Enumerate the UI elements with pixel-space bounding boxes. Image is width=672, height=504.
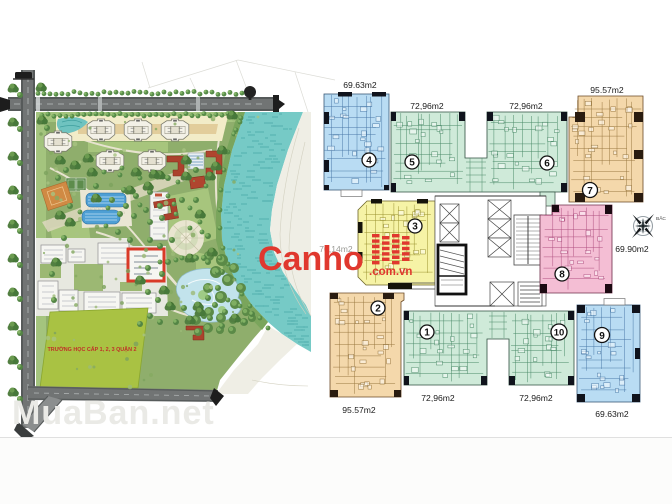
svg-text:8: 8 — [559, 270, 565, 281]
svg-text:Canho: Canho — [258, 240, 364, 278]
svg-text:TRƯỜNG HỌC CẤP 1, 2, 3 QUẬN 2: TRƯỜNG HỌC CẤP 1, 2, 3 QUẬN 2 — [48, 345, 137, 353]
svg-text:7: 7 — [587, 186, 593, 197]
svg-text:1: 1 — [424, 328, 430, 339]
svg-text:69.90m2: 69.90m2 — [615, 244, 649, 254]
svg-text:MuaBan.net: MuaBan.net — [12, 394, 215, 432]
svg-text:72,96m2: 72,96m2 — [519, 393, 553, 403]
svg-text:95.57m2: 95.57m2 — [590, 85, 624, 95]
svg-text:5: 5 — [409, 158, 415, 169]
svg-text:72,96m2: 72,96m2 — [509, 101, 543, 111]
svg-text:10: 10 — [554, 328, 565, 339]
svg-text:69.63m2: 69.63m2 — [343, 80, 377, 90]
svg-text:2: 2 — [375, 304, 381, 315]
svg-text:9: 9 — [599, 331, 605, 342]
svg-text:4: 4 — [366, 156, 372, 167]
svg-text:BẮC: BẮC — [656, 214, 666, 222]
svg-text:6: 6 — [544, 159, 550, 170]
svg-text:72,96m2: 72,96m2 — [421, 393, 455, 403]
svg-text:95.57m2: 95.57m2 — [342, 405, 376, 415]
svg-text:69.63m2: 69.63m2 — [595, 409, 629, 419]
svg-text:72,96m2: 72,96m2 — [410, 101, 444, 111]
svg-text:3: 3 — [412, 222, 418, 233]
svg-text:.com.vn: .com.vn — [369, 266, 412, 278]
